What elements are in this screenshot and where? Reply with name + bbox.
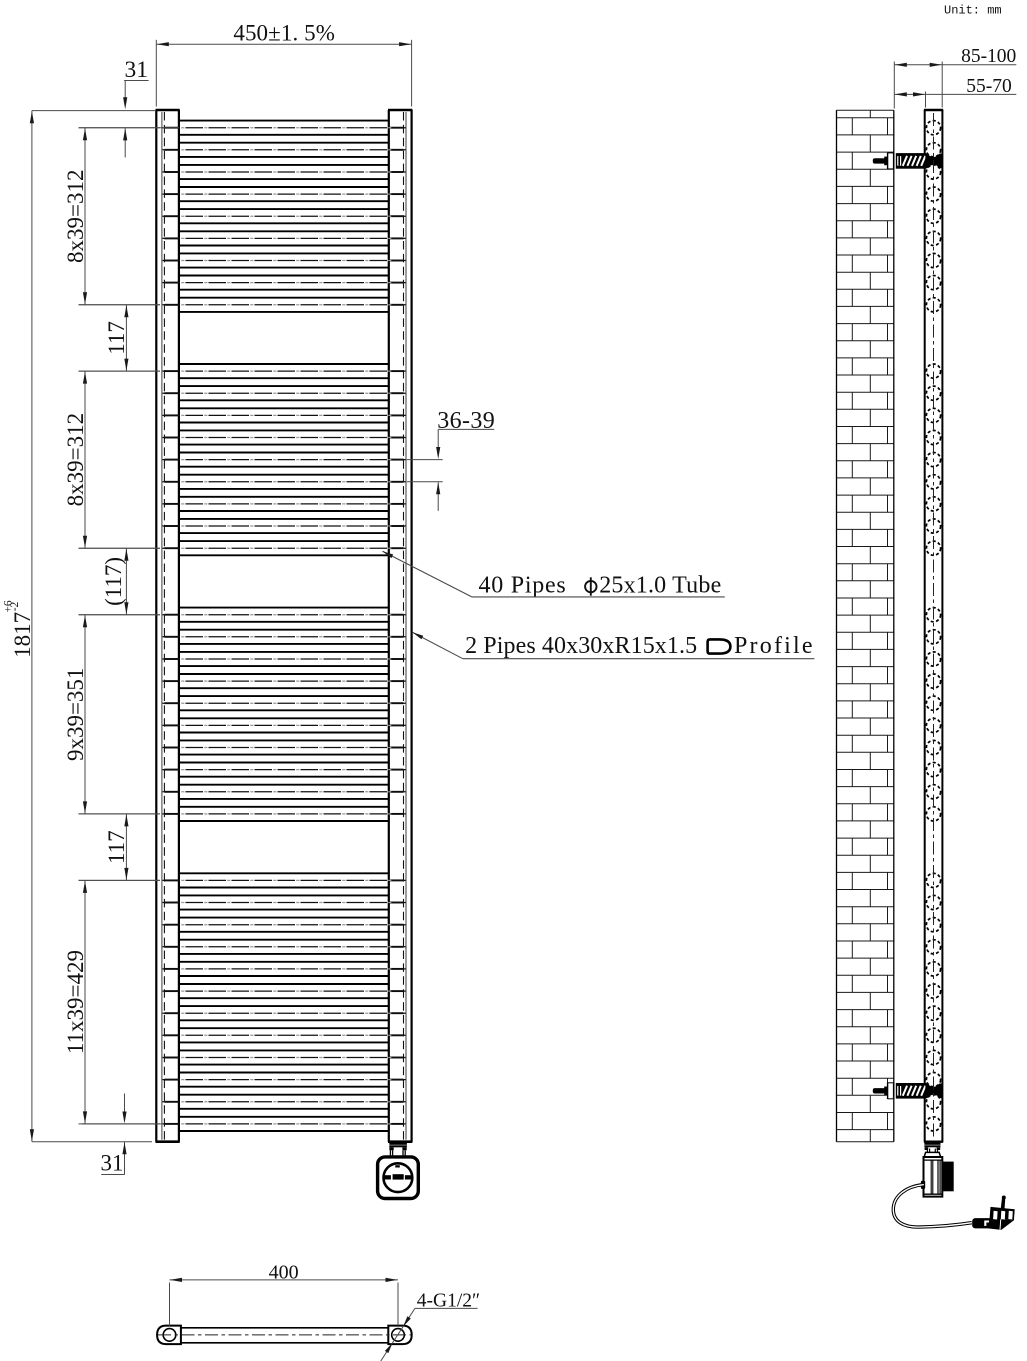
svg-text:450±1. 5%: 450±1. 5% [233,20,335,45]
svg-text:8x39=312: 8x39=312 [63,413,88,506]
svg-text:117: 117 [104,830,129,864]
svg-text:31: 31 [101,1151,124,1176]
svg-text:36-39: 36-39 [437,408,495,434]
svg-text:117: 117 [104,321,129,355]
svg-text:2 Pipes 40x30xR15x1.5: 2 Pipes 40x30xR15x1.5 [465,633,697,659]
svg-text:(117): (117) [101,557,126,606]
svg-text:9x39=351: 9x39=351 [63,668,88,761]
svg-text:31: 31 [124,57,148,83]
svg-text:40 Pipes: 40 Pipes [479,572,567,598]
svg-text:-2: -2 [9,601,21,611]
svg-text:25x1.0 Tube: 25x1.0 Tube [599,572,721,598]
svg-text:11x39=429: 11x39=429 [63,950,88,1054]
svg-text:1817: 1817 [10,612,35,658]
svg-text:8x39=312: 8x39=312 [63,169,88,262]
svg-text:Profile: Profile [734,633,815,659]
svg-text:55-70: 55-70 [966,76,1012,97]
svg-text:Unit: mm: Unit: mm [944,3,1002,17]
svg-text:85-100: 85-100 [961,46,1016,67]
